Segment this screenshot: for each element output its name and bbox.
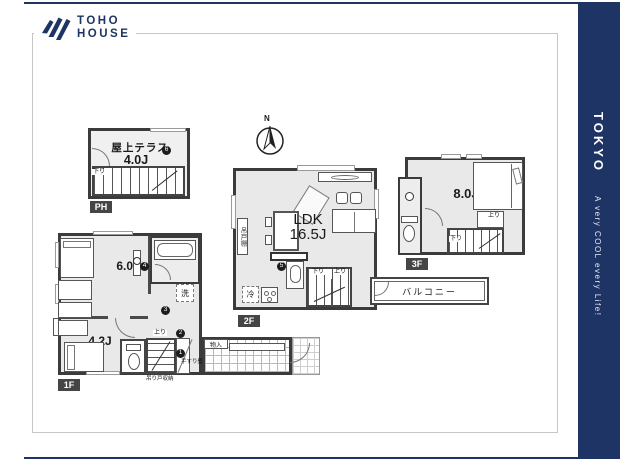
floor-plan-page: TOKYO A very COOL every Life! TOHO HOUSE… — [0, 0, 620, 465]
ph-parapet-rail — [150, 128, 186, 132]
f1-stair-up-label: 上り — [153, 330, 167, 336]
f1-pillow-2 — [67, 345, 75, 370]
f2-tv-oval — [331, 175, 359, 180]
compass-icon — [254, 123, 286, 162]
floor-1f: 6.0J 洗 3 4 4.2J — [53, 230, 323, 395]
sidebar-title: TOKYO — [591, 112, 606, 173]
f1-pillow-1 — [63, 241, 91, 248]
compass: N — [252, 114, 288, 160]
f2-balcony-inner: バルコニー — [374, 281, 485, 301]
f1-stair-arrow — [152, 341, 171, 370]
floor-ph: 屋上テラス 6 4.0J 下り PH — [88, 127, 208, 222]
f2-balcony: バルコニー — [370, 277, 489, 305]
top-accent-line — [24, 2, 620, 4]
f2-window-left — [231, 195, 236, 229]
f3-toilet-bowl — [403, 225, 415, 242]
f2-tv-board — [318, 172, 372, 182]
f3-toilet-tank — [401, 216, 418, 223]
f1-bathtub — [154, 240, 196, 260]
f3-stair-down-label: 下り — [449, 236, 463, 242]
f3-window-top-2 — [466, 154, 482, 159]
f1-toilet-bowl — [128, 353, 140, 370]
brand-line2: HOUSE — [77, 28, 130, 41]
floor-3f: 8.0J 上り 下り 3F — [398, 150, 533, 275]
f2-chair-1 — [265, 217, 272, 227]
f2-stair-up-label: 上り — [333, 269, 347, 275]
f1-bathroom — [150, 236, 200, 284]
brand-wordmark: TOHO HOUSE — [77, 15, 130, 41]
f1-window-left-1 — [55, 242, 59, 268]
f1-marker-2: 2 — [176, 329, 185, 338]
f1-washer-space: 洗 — [176, 284, 194, 302]
f1-desk-2 — [58, 302, 92, 318]
f1-toilet-tank — [126, 344, 141, 351]
f1-badge: 1F — [58, 379, 80, 391]
f1-bed-2 — [64, 342, 104, 372]
f2-cushion-1 — [336, 192, 348, 204]
f3-window-top-1 — [441, 154, 461, 159]
f2-window-top — [297, 165, 355, 171]
ph-room-size: 4.0J — [98, 153, 174, 167]
f1-bathtub-inner — [157, 243, 193, 257]
f1-understair-storage-note: 吊り戸収納 — [146, 377, 174, 383]
ph-stair-arrow — [152, 170, 178, 190]
f1-staircase — [146, 338, 176, 374]
f3-stair-up-label: 上り — [487, 213, 501, 219]
f3-pillow — [512, 167, 523, 184]
f1-handrail-note: 手すり壁 — [181, 360, 203, 366]
f3-badge: 3F — [406, 258, 428, 270]
f1-marker-1: 1 — [176, 349, 185, 358]
f1-storage-box: 物入 — [204, 339, 228, 349]
f1-toilet-room — [120, 339, 146, 374]
compass-north-label: N — [264, 114, 270, 123]
f2-sofa-divider — [354, 212, 355, 232]
f1-marker-4: 4 — [140, 262, 149, 271]
f2-room-name: LDK — [275, 212, 341, 227]
f3-bed — [473, 162, 523, 210]
f1-window-top — [93, 231, 133, 235]
toho-house-logo-icon — [40, 13, 72, 43]
brand-line1: TOHO — [77, 15, 130, 28]
f2-cushion-2 — [350, 192, 362, 204]
ph-stair-down-label: 下り — [92, 169, 106, 175]
f1-desk-3 — [58, 320, 88, 336]
f3-stair-arrow — [479, 233, 501, 249]
f1-bed-1 — [60, 238, 94, 278]
bottom-accent-line — [24, 457, 578, 459]
f1-marker-3: 3 — [161, 306, 170, 315]
f1-shoe-cabinet — [229, 343, 285, 351]
f1-desk-1 — [58, 280, 92, 300]
f1-bath-door-arc — [155, 264, 171, 280]
f3-washbasin — [405, 192, 414, 201]
sidebar-tagline: A very COOL every Life! — [593, 196, 602, 316]
ph-badge: PH — [90, 201, 112, 213]
